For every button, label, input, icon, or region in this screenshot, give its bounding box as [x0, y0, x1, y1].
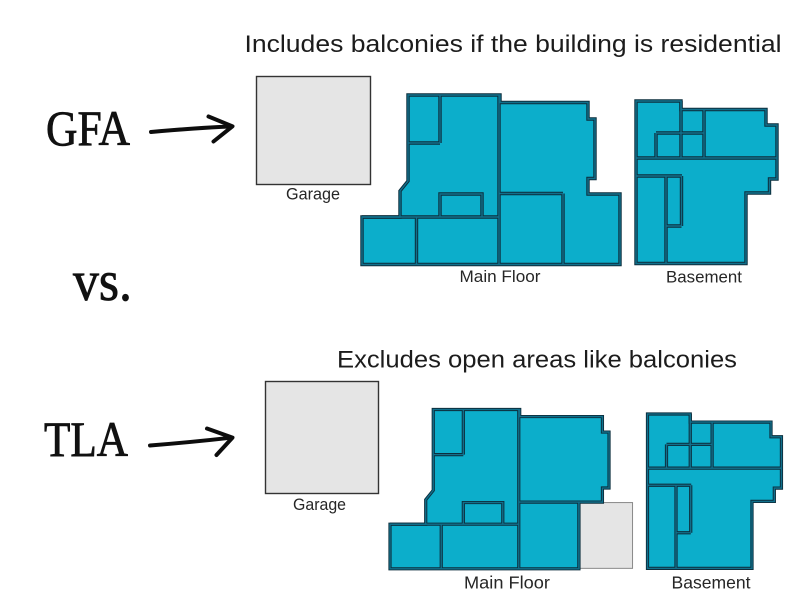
svg-text:Main Floor: Main Floor [464, 573, 550, 593]
svg-text:Excludes open areas like balco: Excludes open areas like balconies [337, 347, 737, 374]
svg-text:Garage: Garage [286, 185, 340, 204]
svg-text:Includes balconies if the buil: Includes balconies if the building is re… [245, 31, 782, 58]
svg-text:Basement: Basement [666, 268, 742, 287]
svg-text:Main Floor: Main Floor [460, 267, 541, 286]
svg-text:TLA: TLA [44, 411, 128, 467]
svg-text:Garage: Garage [293, 495, 346, 514]
svg-text:Basement: Basement [672, 573, 751, 593]
svg-text:GFA: GFA [46, 100, 130, 156]
svg-text:vs.: vs. [73, 250, 132, 313]
